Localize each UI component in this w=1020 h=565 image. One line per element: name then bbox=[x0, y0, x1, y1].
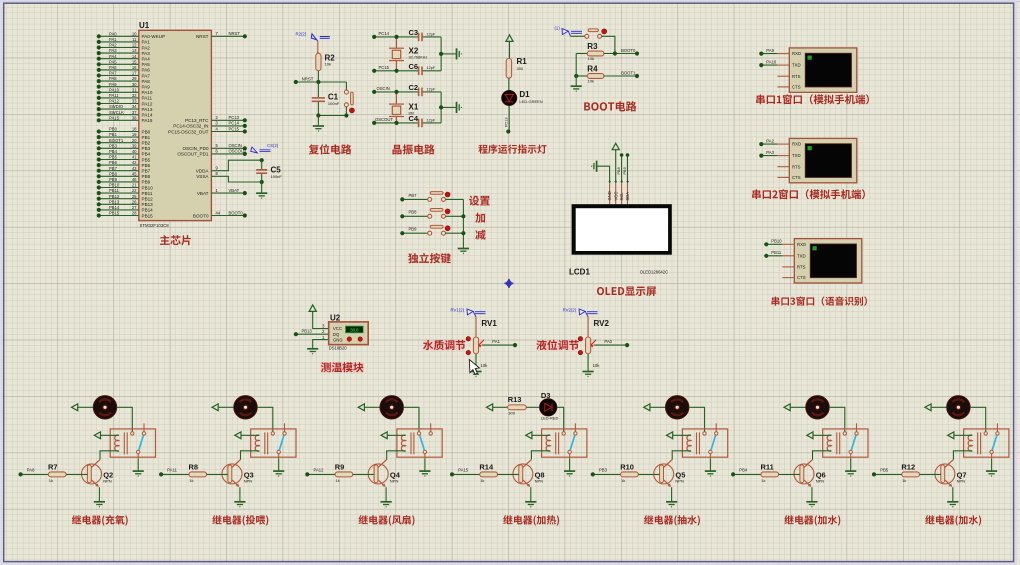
svg-text:33: 33 bbox=[132, 99, 137, 104]
svg-text:12pF: 12pF bbox=[427, 32, 436, 36]
svg-text:PB0: PB0 bbox=[109, 127, 118, 132]
svg-text:PA12: PA12 bbox=[109, 99, 120, 104]
svg-text:PA8: PA8 bbox=[142, 79, 151, 84]
svg-text:PB1: PB1 bbox=[142, 135, 151, 140]
svg-text:BOOT1: BOOT1 bbox=[109, 138, 124, 143]
svg-text:12: 12 bbox=[132, 43, 137, 48]
svg-text:PA9: PA9 bbox=[109, 82, 117, 87]
svg-text:BOOT0: BOOT0 bbox=[229, 210, 244, 215]
svg-text:PA11: PA11 bbox=[109, 93, 119, 98]
svg-text:GND: GND bbox=[333, 337, 343, 342]
svg-text:PB3: PB3 bbox=[142, 146, 151, 151]
svg-text:R13: R13 bbox=[508, 395, 522, 404]
svg-text:10k: 10k bbox=[325, 62, 331, 67]
svg-text:PC15: PC15 bbox=[379, 65, 390, 70]
svg-text:PB3: PB3 bbox=[109, 143, 118, 148]
svg-text:OSCOUT: OSCOUT bbox=[229, 149, 247, 154]
svg-text:DS18B20: DS18B20 bbox=[329, 345, 348, 350]
svg-text:SWCLK: SWCLK bbox=[109, 110, 124, 115]
svg-text:PA11: PA11 bbox=[167, 468, 177, 473]
svg-text:PC14: PC14 bbox=[229, 121, 240, 126]
svg-text:26: 26 bbox=[132, 199, 137, 204]
svg-text:PB2: PB2 bbox=[142, 141, 151, 146]
svg-text:PA8: PA8 bbox=[109, 76, 117, 81]
svg-text:PA10: PA10 bbox=[766, 59, 777, 64]
svg-text:X1: X1 bbox=[409, 103, 419, 112]
svg-text:BOOT1: BOOT1 bbox=[621, 70, 636, 75]
svg-text:38.0: 38.0 bbox=[350, 327, 359, 332]
svg-text:PB11: PB11 bbox=[109, 188, 120, 193]
svg-text:PB9: PB9 bbox=[142, 180, 151, 185]
svg-text:PA10: PA10 bbox=[109, 87, 120, 92]
svg-text:RTS: RTS bbox=[797, 265, 806, 270]
svg-text:10k: 10k bbox=[593, 363, 601, 368]
svg-text:43: 43 bbox=[132, 166, 137, 171]
svg-text:27: 27 bbox=[132, 205, 137, 210]
svg-text:VSSA: VSSA bbox=[196, 174, 209, 179]
svg-text:PB6: PB6 bbox=[109, 160, 118, 165]
svg-text:OSCIN_PD0: OSCIN_PD0 bbox=[182, 146, 208, 151]
svg-text:X2: X2 bbox=[409, 47, 419, 56]
svg-text:PA7: PA7 bbox=[142, 73, 151, 78]
svg-text:20: 20 bbox=[132, 138, 137, 143]
svg-text:PA5: PA5 bbox=[109, 59, 117, 64]
svg-text:PB11: PB11 bbox=[142, 191, 153, 196]
svg-text:PA1: PA1 bbox=[109, 37, 117, 42]
svg-text:PB7: PB7 bbox=[409, 193, 418, 198]
svg-text:1k: 1k bbox=[189, 478, 193, 483]
svg-text:BOOT0: BOOT0 bbox=[193, 213, 209, 218]
svg-text:PA2: PA2 bbox=[109, 43, 117, 48]
svg-text:BOOT0: BOOT0 bbox=[621, 48, 636, 53]
svg-text:30: 30 bbox=[132, 82, 137, 87]
svg-text:3: 3 bbox=[620, 181, 624, 183]
svg-text:LCD1: LCD1 bbox=[569, 268, 590, 277]
svg-text:PA15: PA15 bbox=[109, 115, 120, 120]
svg-text:1k: 1k bbox=[761, 478, 765, 483]
svg-text:PC14: PC14 bbox=[379, 31, 390, 36]
svg-text:R2(2): R2(2) bbox=[296, 32, 307, 37]
svg-text:VCC: VCC bbox=[613, 192, 618, 201]
svg-text:100nF: 100nF bbox=[271, 174, 283, 179]
svg-text:PA5: PA5 bbox=[142, 62, 151, 67]
svg-text:C3: C3 bbox=[409, 28, 419, 37]
svg-text:PB5: PB5 bbox=[880, 468, 889, 473]
svg-text:46: 46 bbox=[132, 177, 137, 182]
svg-text:NPN: NPN bbox=[816, 478, 825, 483]
svg-text:1k: 1k bbox=[621, 478, 625, 483]
svg-text:PB3: PB3 bbox=[599, 468, 608, 473]
svg-text:PA13: PA13 bbox=[142, 107, 153, 112]
svg-text:PB0: PB0 bbox=[142, 129, 151, 134]
svg-text:RTS: RTS bbox=[792, 164, 801, 169]
svg-text:TXD: TXD bbox=[792, 153, 801, 158]
svg-text:22: 22 bbox=[132, 188, 137, 193]
svg-text:DQ: DQ bbox=[333, 332, 340, 337]
svg-text:PB10: PB10 bbox=[771, 239, 782, 244]
svg-text:RV2: RV2 bbox=[594, 319, 610, 328]
svg-text:PB10: PB10 bbox=[142, 185, 154, 190]
svg-text:1: 1 bbox=[608, 181, 612, 183]
svg-text:VBAT: VBAT bbox=[197, 191, 209, 196]
svg-text:PB12: PB12 bbox=[109, 194, 120, 199]
svg-text:PA4: PA4 bbox=[109, 54, 117, 59]
svg-text:4: 4 bbox=[626, 181, 630, 183]
svg-text:19: 19 bbox=[132, 132, 137, 137]
svg-text:R4: R4 bbox=[587, 65, 598, 74]
svg-text:PA4: PA4 bbox=[142, 57, 151, 62]
svg-text:40: 40 bbox=[132, 149, 137, 154]
svg-text:RV2(2): RV2(2) bbox=[563, 307, 577, 312]
svg-text:PC13: PC13 bbox=[229, 115, 240, 120]
svg-text:PC15: PC15 bbox=[229, 126, 240, 131]
svg-text:PB8: PB8 bbox=[109, 171, 118, 176]
svg-text:PA6: PA6 bbox=[142, 68, 151, 73]
svg-text:PB1: PB1 bbox=[109, 132, 118, 137]
svg-text:R11: R11 bbox=[761, 462, 774, 471]
svg-text:PA1: PA1 bbox=[492, 339, 500, 344]
svg-text:PB13: PB13 bbox=[302, 328, 313, 333]
svg-text:12pF: 12pF bbox=[427, 118, 436, 122]
svg-text:LED-RED: LED-RED bbox=[541, 416, 559, 421]
svg-text:NPN: NPN bbox=[103, 478, 112, 483]
svg-text:R12: R12 bbox=[901, 462, 915, 471]
svg-text:RXD: RXD bbox=[797, 242, 806, 247]
svg-text:TXD: TXD bbox=[792, 63, 801, 68]
svg-text:PC13: PC13 bbox=[505, 118, 509, 128]
svg-text:11: 11 bbox=[132, 37, 137, 42]
svg-text:PC14-OSC32_IN: PC14-OSC32_IN bbox=[173, 124, 208, 129]
svg-text:RTS: RTS bbox=[792, 74, 801, 79]
svg-text:PA3: PA3 bbox=[109, 48, 117, 53]
svg-text:14: 14 bbox=[132, 54, 137, 59]
svg-text:R7: R7 bbox=[48, 462, 58, 471]
svg-text:16: 16 bbox=[132, 65, 137, 70]
svg-text:13: 13 bbox=[132, 48, 137, 53]
svg-text:D1: D1 bbox=[519, 90, 530, 99]
svg-text:TXD: TXD bbox=[797, 253, 806, 258]
svg-text:10: 10 bbox=[132, 31, 137, 36]
svg-text:17: 17 bbox=[132, 71, 137, 76]
svg-text:R3: R3 bbox=[587, 42, 598, 51]
svg-text:300: 300 bbox=[508, 410, 515, 415]
svg-text:25: 25 bbox=[132, 194, 137, 199]
svg-text:PB5: PB5 bbox=[109, 155, 118, 160]
svg-text:VDDA: VDDA bbox=[196, 169, 210, 174]
svg-text:PB15: PB15 bbox=[109, 211, 120, 216]
svg-text:31: 31 bbox=[132, 87, 137, 92]
svg-text:PB5: PB5 bbox=[142, 157, 151, 162]
svg-text:U1: U1 bbox=[139, 21, 150, 30]
svg-text:OSCIN: OSCIN bbox=[377, 86, 390, 91]
svg-text:PB8: PB8 bbox=[142, 174, 151, 179]
svg-text:PB15: PB15 bbox=[142, 213, 154, 218]
svg-text:PB9: PB9 bbox=[109, 177, 118, 182]
svg-text:PA3: PA3 bbox=[766, 150, 774, 155]
svg-text:PA12: PA12 bbox=[142, 101, 153, 106]
svg-text:41: 41 bbox=[132, 155, 137, 160]
svg-text:PB12: PB12 bbox=[142, 197, 154, 202]
svg-text:PA15: PA15 bbox=[142, 118, 153, 123]
svg-text:CTS: CTS bbox=[797, 275, 806, 280]
svg-text:PB6: PB6 bbox=[142, 163, 151, 168]
svg-text:R14: R14 bbox=[479, 462, 494, 471]
svg-text:PB9: PB9 bbox=[409, 227, 418, 232]
svg-text:1k: 1k bbox=[902, 478, 906, 483]
svg-text:PB14: PB14 bbox=[142, 208, 154, 213]
svg-text:PA14: PA14 bbox=[142, 113, 153, 118]
svg-text:R10: R10 bbox=[620, 462, 634, 471]
svg-text:10k: 10k bbox=[481, 363, 489, 368]
svg-text:PA11: PA11 bbox=[142, 96, 153, 101]
svg-text:PB13: PB13 bbox=[142, 202, 154, 207]
svg-text:C2: C2 bbox=[409, 83, 419, 92]
svg-text:SDA: SDA bbox=[625, 192, 630, 201]
svg-text:PB11: PB11 bbox=[771, 250, 782, 255]
svg-text:34: 34 bbox=[132, 104, 137, 109]
svg-text:21: 21 bbox=[132, 183, 137, 188]
svg-text:18: 18 bbox=[132, 127, 137, 132]
svg-text:10k: 10k bbox=[588, 56, 594, 61]
svg-text:38: 38 bbox=[132, 115, 137, 120]
svg-text:NRST: NRST bbox=[302, 76, 314, 81]
svg-text:42: 42 bbox=[132, 160, 137, 165]
svg-text:SCL: SCL bbox=[619, 192, 624, 201]
svg-text:NRST: NRST bbox=[196, 34, 209, 39]
svg-text:VCC: VCC bbox=[333, 326, 342, 331]
svg-text:SWDIO: SWDIO bbox=[109, 104, 124, 109]
svg-text:2: 2 bbox=[614, 181, 618, 183]
svg-text:300: 300 bbox=[517, 66, 524, 71]
svg-text:PB7: PB7 bbox=[109, 166, 118, 171]
svg-text:PA0: PA0 bbox=[604, 339, 612, 344]
svg-text:100nF: 100nF bbox=[328, 101, 340, 106]
svg-text:D3: D3 bbox=[541, 391, 551, 400]
svg-text:12pF: 12pF bbox=[427, 87, 436, 91]
svg-text:CS(2): CS(2) bbox=[267, 143, 279, 148]
svg-text:PC13_RTC: PC13_RTC bbox=[185, 118, 209, 123]
svg-text:PB9: PB9 bbox=[623, 167, 627, 174]
svg-text:RXD: RXD bbox=[792, 142, 801, 147]
svg-text:PA6: PA6 bbox=[109, 65, 117, 70]
svg-text:STM32F103C8: STM32F103C8 bbox=[140, 223, 170, 228]
svg-text:PB4: PB4 bbox=[109, 149, 118, 154]
svg-text:PA1: PA1 bbox=[142, 40, 151, 45]
svg-text:PB8: PB8 bbox=[617, 167, 621, 174]
svg-text:VBAT: VBAT bbox=[229, 188, 240, 193]
svg-text:OSCOUT: OSCOUT bbox=[375, 117, 393, 122]
svg-text:32: 32 bbox=[132, 93, 137, 98]
svg-text:R1: R1 bbox=[517, 57, 528, 66]
svg-text:PA9: PA9 bbox=[142, 85, 151, 90]
svg-text:PA15: PA15 bbox=[458, 468, 469, 473]
svg-text:OLED128642C: OLED128642C bbox=[640, 270, 668, 275]
svg-text:PB13: PB13 bbox=[109, 199, 120, 204]
svg-text:(1): (1) bbox=[555, 26, 561, 31]
svg-text:PC15-OSC32_OUT: PC15-OSC32_OUT bbox=[168, 129, 209, 134]
svg-text:R8: R8 bbox=[189, 462, 199, 471]
svg-text:PA2: PA2 bbox=[142, 45, 151, 50]
svg-text:39: 39 bbox=[132, 143, 137, 148]
svg-text:CTS: CTS bbox=[792, 175, 801, 180]
svg-text:PB4: PB4 bbox=[739, 468, 748, 473]
svg-text:CTS: CTS bbox=[792, 85, 801, 90]
svg-text:RV1(2): RV1(2) bbox=[451, 307, 465, 312]
svg-text:OSCOUT_PD1: OSCOUT_PD1 bbox=[177, 152, 209, 157]
svg-text:NRST: NRST bbox=[229, 31, 241, 36]
svg-text:PA2: PA2 bbox=[766, 138, 774, 143]
svg-text:28: 28 bbox=[132, 211, 137, 216]
svg-text:RV1: RV1 bbox=[481, 319, 497, 328]
svg-text:PA12: PA12 bbox=[314, 468, 325, 473]
svg-text:C6: C6 bbox=[409, 62, 419, 71]
svg-text:NPN: NPN bbox=[244, 478, 253, 483]
svg-text:PA9: PA9 bbox=[766, 48, 774, 53]
svg-text:15: 15 bbox=[132, 59, 137, 64]
svg-text:37: 37 bbox=[132, 110, 137, 115]
svg-text:NPN: NPN bbox=[390, 478, 399, 483]
svg-text:R9: R9 bbox=[335, 462, 345, 471]
svg-text:8M: 8M bbox=[409, 112, 414, 116]
svg-text:LED-GREEN: LED-GREEN bbox=[519, 99, 542, 104]
svg-text:44: 44 bbox=[216, 210, 221, 215]
svg-text:PA8: PA8 bbox=[27, 468, 35, 473]
svg-text:PB8: PB8 bbox=[409, 210, 418, 215]
svg-text:PA0-WKUP: PA0-WKUP bbox=[142, 34, 166, 39]
svg-text:PB10: PB10 bbox=[109, 183, 120, 188]
svg-text:PB14: PB14 bbox=[109, 205, 120, 210]
svg-text:PB4: PB4 bbox=[142, 152, 151, 157]
svg-text:OSCIN: OSCIN bbox=[229, 143, 242, 148]
svg-text:NPN: NPN bbox=[535, 478, 544, 483]
svg-text:1k: 1k bbox=[480, 478, 484, 483]
svg-text:12pF: 12pF bbox=[427, 66, 436, 70]
svg-text:PA3: PA3 bbox=[142, 51, 151, 56]
svg-text:29: 29 bbox=[132, 76, 137, 81]
svg-text:PA0: PA0 bbox=[109, 31, 117, 36]
svg-text:PB7: PB7 bbox=[142, 169, 151, 174]
svg-text:PA7: PA7 bbox=[109, 71, 117, 76]
svg-text:45: 45 bbox=[132, 171, 137, 176]
svg-text:32.768KHz: 32.768KHz bbox=[409, 56, 428, 60]
svg-text:NPN: NPN bbox=[675, 478, 684, 483]
svg-text:1k: 1k bbox=[336, 478, 340, 483]
svg-text:10k: 10k bbox=[588, 79, 594, 84]
svg-text:NPN: NPN bbox=[957, 478, 966, 483]
svg-text:GND: GND bbox=[607, 191, 612, 200]
svg-text:1k: 1k bbox=[49, 478, 53, 483]
svg-text:PA10: PA10 bbox=[142, 90, 153, 95]
svg-text:RXD: RXD bbox=[792, 51, 801, 56]
